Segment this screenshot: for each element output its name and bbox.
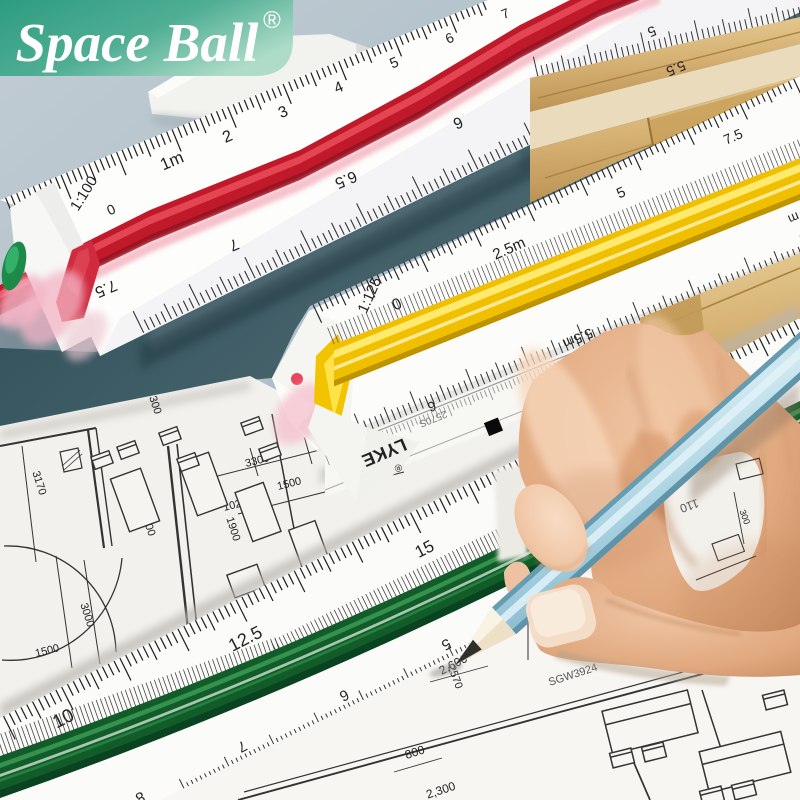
svg-text:Space Ball: Space Ball bbox=[16, 12, 260, 73]
svg-text:®: ® bbox=[263, 7, 281, 34]
